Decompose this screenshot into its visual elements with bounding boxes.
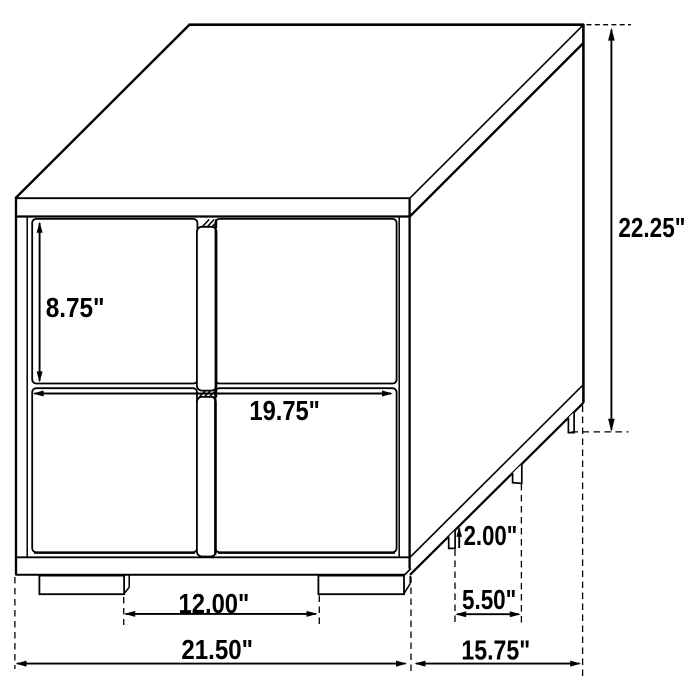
svg-text:8.75": 8.75" <box>46 292 105 323</box>
svg-text:2.00": 2.00" <box>464 520 518 551</box>
svg-text:19.75": 19.75" <box>249 395 320 426</box>
svg-text:22.25": 22.25" <box>618 212 685 243</box>
svg-text:21.50": 21.50" <box>181 634 253 665</box>
svg-text:12.00": 12.00" <box>179 588 250 619</box>
svg-text:15.75": 15.75" <box>461 635 530 666</box>
svg-text:5.50": 5.50" <box>462 584 516 615</box>
